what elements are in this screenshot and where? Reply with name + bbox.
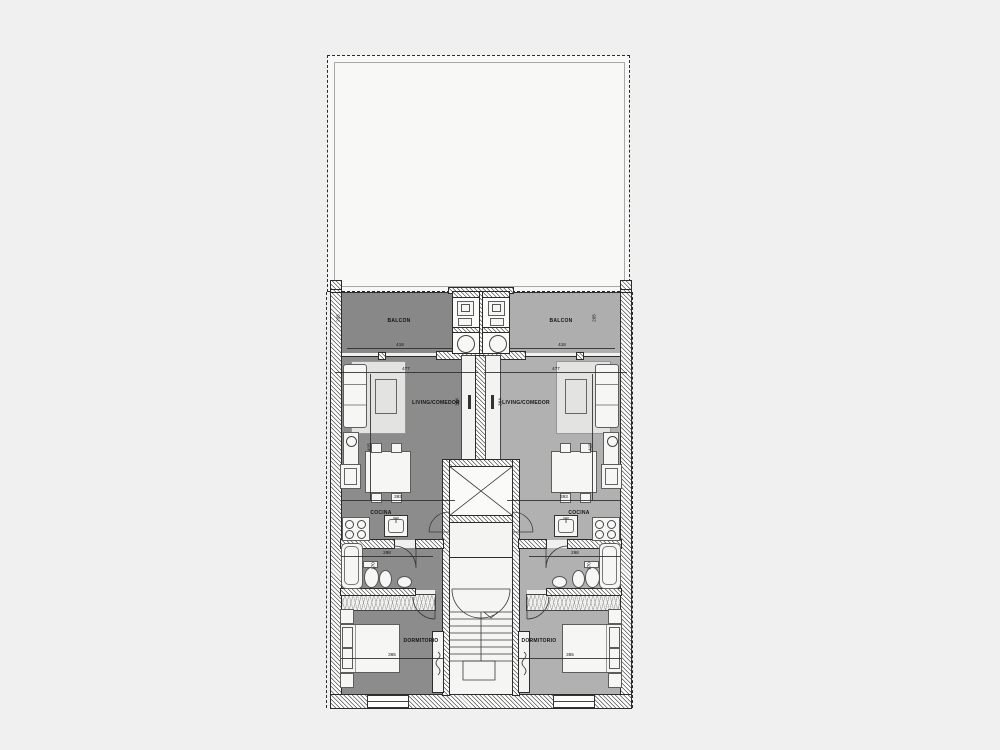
bidet-right bbox=[572, 570, 585, 588]
core-wall-left bbox=[443, 460, 449, 695]
window-handle-left bbox=[468, 395, 471, 409]
dim-bath-depth-left: 170 bbox=[371, 562, 376, 570]
burner bbox=[607, 520, 616, 529]
bathtub-right-inner bbox=[603, 547, 616, 584]
dining-table-right bbox=[552, 452, 596, 492]
dim-living-width-left: 477 bbox=[402, 366, 410, 371]
dining-table-left bbox=[366, 452, 410, 492]
property-line-right bbox=[632, 292, 633, 708]
service-shelf-right bbox=[491, 319, 503, 325]
bath-wall-right-a bbox=[519, 540, 546, 548]
label-living-left: LIVING/COMEDOR bbox=[412, 400, 460, 406]
closet-wall-right bbox=[547, 589, 621, 595]
bathtub-left bbox=[342, 544, 362, 588]
bedroom-window-left bbox=[368, 696, 408, 707]
elevator-top-wall bbox=[443, 460, 519, 466]
glazing-pier-left bbox=[379, 353, 385, 359]
dim-line-balcony-right bbox=[509, 348, 615, 349]
nightstand-left-top bbox=[341, 610, 353, 623]
bed-fold-line bbox=[606, 625, 607, 672]
dim-balcony-width-left: 418 bbox=[396, 342, 404, 347]
service-box-left-wall bbox=[453, 292, 479, 297]
burner bbox=[595, 530, 604, 539]
terrace-inner-line bbox=[334, 62, 625, 287]
bed-fold-line bbox=[355, 625, 356, 672]
bed-right bbox=[563, 625, 621, 672]
sink-basin bbox=[389, 520, 403, 532]
side-table-left bbox=[344, 433, 358, 467]
washbasin-left bbox=[397, 576, 412, 588]
side-table-right bbox=[604, 433, 618, 467]
dim-balcony-depth-left: 205 bbox=[336, 314, 341, 322]
label-kitchen-left: COCINA bbox=[370, 510, 391, 516]
closet-right bbox=[527, 595, 621, 610]
label-living-right: LIVING/COMEDOR bbox=[502, 400, 550, 406]
dim-bath-width-left: 298 bbox=[383, 550, 391, 555]
fridge-right-detail bbox=[606, 469, 617, 484]
fridge-left-detail bbox=[345, 469, 356, 484]
kitchen-sink-left bbox=[385, 516, 407, 536]
pillow bbox=[343, 628, 352, 647]
stove-right bbox=[593, 518, 619, 540]
entry-hall bbox=[449, 522, 513, 558]
water-heater-left-detail bbox=[462, 305, 469, 311]
nightstand-right-top bbox=[609, 610, 621, 623]
burner bbox=[345, 530, 354, 539]
bed-left bbox=[341, 625, 399, 672]
dim-side-depth-left: 415 bbox=[367, 443, 372, 451]
washer-right bbox=[489, 335, 507, 353]
service-shelf-left bbox=[459, 319, 471, 325]
window-handle-right bbox=[491, 395, 494, 409]
chair bbox=[561, 444, 570, 452]
sofa-left bbox=[344, 365, 366, 427]
fridge-left bbox=[341, 465, 360, 488]
toilet-left bbox=[364, 567, 379, 588]
fridge-right bbox=[602, 465, 621, 488]
chair bbox=[372, 444, 381, 452]
service-box-right-divider bbox=[483, 328, 509, 332]
water-heater-right bbox=[489, 302, 504, 315]
bathtub-right bbox=[600, 544, 620, 588]
dim-living-width-right: 477 bbox=[552, 366, 560, 371]
coffee-table-right bbox=[566, 380, 586, 413]
dim-line-living-right bbox=[484, 372, 627, 373]
stair-hall-line bbox=[449, 557, 513, 558]
burner bbox=[607, 530, 616, 539]
staircase bbox=[449, 558, 513, 695]
service-box-right bbox=[483, 292, 509, 353]
dim-bath-width-right: 298 bbox=[571, 550, 579, 555]
dim-bath-depth-right: 170 bbox=[587, 562, 592, 570]
dim-bedroom-width-right: 365 bbox=[566, 652, 574, 657]
dim-line-balcony-left bbox=[347, 348, 453, 349]
outer-wall-right bbox=[621, 290, 631, 708]
burner bbox=[357, 520, 366, 529]
service-box-right-wall bbox=[483, 292, 509, 297]
bidet-left bbox=[379, 570, 392, 588]
coffee-table-left bbox=[376, 380, 396, 413]
sofa-right bbox=[596, 365, 618, 427]
nightstand-left-bottom bbox=[341, 674, 353, 687]
outer-wall-left bbox=[331, 290, 341, 708]
label-balcony-left: BALCON bbox=[388, 318, 411, 324]
water-heater-right-detail bbox=[493, 305, 500, 311]
dim-balcony-depth-right: 205 bbox=[592, 314, 597, 322]
washer-left bbox=[457, 335, 475, 353]
lamp-right bbox=[607, 436, 618, 447]
dim-kitchen-width-right: 393 bbox=[560, 494, 568, 499]
chair bbox=[392, 444, 401, 452]
bathtub-left-inner bbox=[345, 547, 358, 584]
dim-bedroom-width-left: 365 bbox=[388, 652, 396, 657]
dim-line-side-left bbox=[370, 374, 371, 500]
label-bedroom-left: DORMITORIO bbox=[404, 638, 439, 644]
toilet-right bbox=[585, 567, 600, 588]
elevator-shaft bbox=[449, 466, 513, 516]
dim-line-bath-left bbox=[341, 556, 433, 557]
closet-left bbox=[341, 595, 435, 610]
burner bbox=[595, 520, 604, 529]
label-balcony-right: BALCON bbox=[550, 318, 573, 324]
dim-balcony-width-right: 418 bbox=[558, 342, 566, 347]
dim-side-depth-right: 415 bbox=[588, 443, 593, 451]
dim-line-bath-right bbox=[529, 556, 621, 557]
pillow bbox=[610, 628, 619, 647]
dim-line-bedroom-right bbox=[519, 658, 621, 659]
service-box-left-divider bbox=[453, 328, 479, 332]
dim-line-kitchen-left bbox=[341, 500, 455, 501]
burner bbox=[345, 520, 354, 529]
burner bbox=[357, 530, 366, 539]
water-heater-left bbox=[458, 302, 473, 315]
stove-left bbox=[343, 518, 369, 540]
bedroom-window-right bbox=[554, 696, 594, 707]
dim-line-side-right bbox=[592, 374, 593, 500]
dim-line-living-left bbox=[335, 372, 478, 373]
service-box-left bbox=[453, 292, 479, 353]
washbasin-right bbox=[552, 576, 567, 588]
property-line-left bbox=[326, 292, 327, 708]
glazing-pier-right bbox=[577, 353, 583, 359]
label-kitchen-right: COCINA bbox=[568, 510, 589, 516]
floor-plan-drawing: 418 418 477 477 393 393 298 298 365 365 … bbox=[0, 0, 1000, 750]
label-bedroom-right: DORMITORIO bbox=[522, 638, 557, 644]
sink-basin bbox=[559, 520, 573, 532]
dim-kitchen-width-left: 393 bbox=[394, 494, 402, 499]
closet-wall-left bbox=[341, 589, 415, 595]
kitchen-sink-right bbox=[555, 516, 577, 536]
dim-line-kitchen-right bbox=[507, 500, 621, 501]
elevator-bottom-wall bbox=[449, 516, 513, 522]
dim-line-bedroom-left bbox=[341, 658, 443, 659]
nightstand-right-bottom bbox=[609, 674, 621, 687]
lamp-left bbox=[346, 436, 357, 447]
bath-wall-left-b bbox=[416, 540, 443, 548]
